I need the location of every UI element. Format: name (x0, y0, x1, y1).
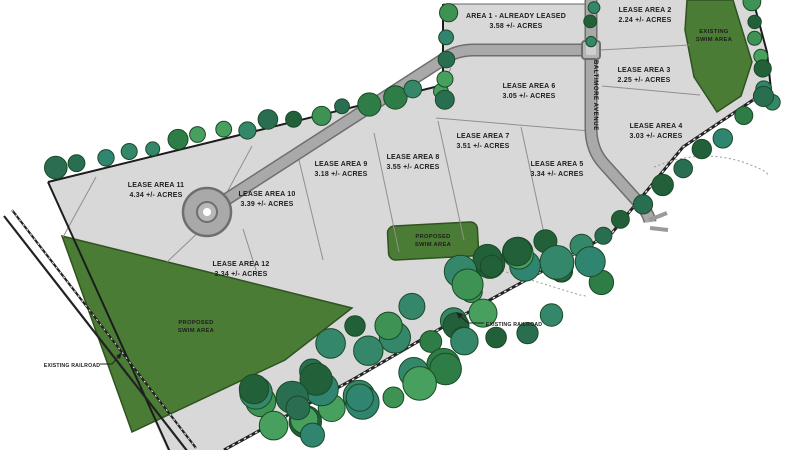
svg-text:LEASE AREA 4: LEASE AREA 4 (630, 123, 683, 130)
svg-text:LEASE AREA 9: LEASE AREA 9 (315, 161, 368, 168)
tree-icon (403, 367, 437, 401)
tree-icon (121, 144, 137, 160)
tree-icon (286, 111, 302, 127)
tree-icon (383, 387, 404, 408)
tree-icon (438, 51, 455, 68)
tree-icon (674, 159, 693, 178)
tree-icon (190, 127, 206, 143)
tree-icon (301, 423, 325, 447)
svg-text:LEASE AREA 8: LEASE AREA 8 (387, 154, 440, 161)
tree-icon (239, 374, 268, 403)
svg-text:AREA 1 - ALREADY LEASED: AREA 1 - ALREADY LEASED (466, 13, 566, 20)
svg-text:LEASE AREA 6: LEASE AREA 6 (503, 83, 556, 90)
tree-icon (354, 336, 383, 365)
avenue-name-label: BALTIMORE AVENUE (592, 60, 598, 131)
cul-de-sac (183, 188, 231, 236)
svg-text:3.03 +/- ACRES: 3.03 +/- ACRES (630, 133, 683, 140)
svg-text:3.18 +/- ACRES: 3.18 +/- ACRES (315, 171, 368, 178)
tree-icon (595, 227, 612, 244)
tree-icon (713, 129, 732, 148)
svg-text:3.34 +/- ACRES: 3.34 +/- ACRES (531, 171, 584, 178)
site-plan-map: AREA 1 - ALREADY LEASED3.58 +/- ACRES LE… (0, 0, 800, 450)
tree-icon (452, 269, 483, 300)
tree-icon (439, 30, 454, 45)
tree-icon (612, 211, 630, 229)
tree-icon (404, 80, 422, 98)
tree-icon (345, 316, 365, 336)
tree-icon (399, 293, 425, 319)
svg-text:3.34 +/- ACRES: 3.34 +/- ACRES (215, 271, 268, 278)
tree-icon (375, 312, 402, 339)
tree-icon (358, 93, 381, 116)
tree-icon (98, 150, 114, 166)
svg-text:LEASE AREA 11: LEASE AREA 11 (128, 182, 185, 189)
svg-text:LEASE AREA 2: LEASE AREA 2 (619, 7, 672, 14)
tree-icon (451, 328, 478, 355)
svg-text:LEASE AREA 3: LEASE AREA 3 (618, 67, 671, 74)
svg-text:SWIM AREA: SWIM AREA (415, 242, 452, 248)
railroad-label-left: EXISTING RAILROAD (44, 363, 100, 369)
tree-icon (259, 411, 288, 440)
tree-icon (692, 139, 711, 158)
tree-icon (258, 110, 278, 130)
tree-icon (735, 107, 753, 125)
svg-text:SWIM AREA: SWIM AREA (696, 37, 733, 43)
tree-icon (216, 121, 232, 137)
svg-text:LEASE AREA 10: LEASE AREA 10 (239, 191, 296, 198)
tree-icon (486, 327, 507, 348)
svg-text:3.58 +/- ACRES: 3.58 +/- ACRES (490, 23, 543, 30)
tree-icon (45, 156, 68, 179)
svg-text:LEASE AREA 12: LEASE AREA 12 (213, 261, 270, 268)
svg-text:EXISTING: EXISTING (699, 29, 729, 35)
tree-icon (748, 15, 761, 28)
tree-icon (435, 90, 454, 109)
tree-icon (146, 142, 160, 156)
tree-icon (754, 60, 771, 77)
tree-icon (633, 195, 652, 214)
tree-icon (480, 255, 502, 277)
tree-icon (286, 396, 310, 420)
tree-icon (316, 329, 346, 359)
tree-icon (312, 106, 331, 125)
tree-icon (575, 247, 605, 277)
tree-icon (239, 122, 256, 139)
tree-icon (652, 174, 673, 195)
svg-text:4.34 +/- ACRES: 4.34 +/- ACRES (130, 192, 183, 199)
tree-icon (503, 237, 531, 265)
tree-icon (335, 99, 350, 114)
svg-text:2.25 +/- ACRES: 2.25 +/- ACRES (618, 77, 671, 84)
tree-icon (586, 36, 596, 46)
svg-text:3.39 +/- ACRES: 3.39 +/- ACRES (241, 201, 294, 208)
tree-icon (753, 86, 773, 106)
svg-text:3.55 +/- ACRES: 3.55 +/- ACRES (387, 164, 440, 171)
railroad-label-center: EXISTING RAILROAD (486, 322, 542, 328)
tree-icon (540, 304, 562, 326)
tree-icon (588, 2, 600, 14)
tree-icon (168, 129, 188, 149)
proposed-swim-area-center (387, 222, 479, 261)
svg-text:3.05 +/- ACRES: 3.05 +/- ACRES (503, 93, 556, 100)
svg-text:SWIM AREA: SWIM AREA (178, 328, 215, 334)
svg-text:PROPOSED: PROPOSED (178, 320, 213, 326)
tree-icon (440, 4, 458, 22)
tree-icon (748, 31, 762, 45)
tree-icon (68, 155, 85, 172)
tree-icon (346, 384, 373, 411)
svg-text:2.24 +/- ACRES: 2.24 +/- ACRES (619, 17, 672, 24)
tree-icon (540, 246, 574, 280)
svg-text:LEASE AREA 7: LEASE AREA 7 (457, 133, 510, 140)
svg-text:LEASE AREA 5: LEASE AREA 5 (531, 161, 584, 168)
tree-icon (584, 15, 597, 28)
tree-icon (437, 71, 453, 87)
svg-text:PROPOSED: PROPOSED (415, 234, 450, 240)
svg-text:3.51 +/- ACRES: 3.51 +/- ACRES (457, 143, 510, 150)
